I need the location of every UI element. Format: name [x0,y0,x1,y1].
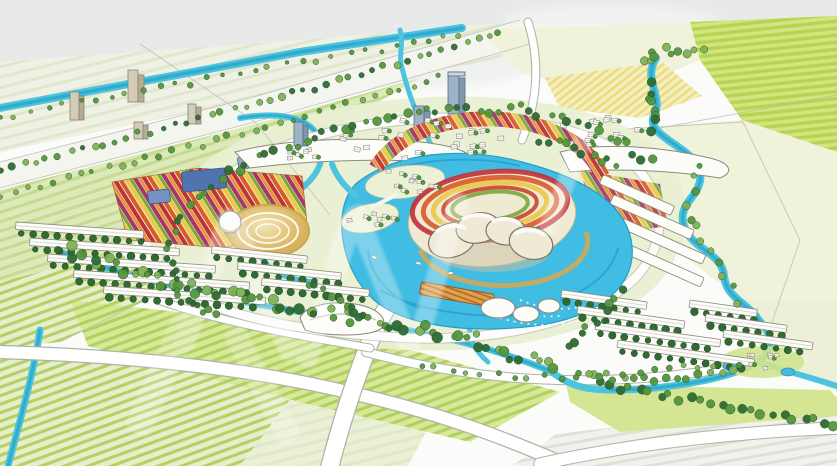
tree [360,97,366,103]
tree [441,34,445,38]
tree [301,58,307,64]
tree [432,332,443,343]
street-tree [116,252,122,258]
tree [113,259,120,266]
tree [432,110,438,116]
blue-roof-building [147,189,170,204]
tree [348,122,356,130]
tree [161,126,166,131]
tree [93,143,100,150]
tree [318,128,324,134]
tree [674,375,680,381]
tree [619,286,627,294]
tree [594,320,601,327]
tree [456,33,461,38]
tree [247,294,255,302]
tree [264,64,270,70]
tree [208,184,214,190]
tree [416,109,422,115]
tree [202,286,211,295]
tree [278,120,284,126]
tree [573,374,579,380]
masterplan-illustration [0,0,837,466]
tree [518,102,524,108]
tree [173,81,177,85]
tree [445,104,453,112]
street-tree [105,293,114,302]
yard-tree [482,150,487,155]
street-tree [151,254,159,262]
tree [604,307,612,315]
tree [736,362,742,368]
tree [563,139,571,147]
tree [386,325,393,332]
tree [747,406,754,413]
tree [426,52,431,57]
tree [196,194,202,200]
resort-pool [781,368,795,376]
street-tree [101,235,109,243]
tree [363,48,367,52]
tree [591,152,598,159]
tree [682,202,690,210]
tree [496,370,501,375]
tree [720,370,727,377]
yard-tree [292,151,297,156]
village-house [750,353,755,357]
village-house [347,218,353,222]
tree [241,162,247,168]
tree [609,377,616,384]
tree [348,304,355,311]
street-tree [32,246,38,252]
tree [187,201,195,209]
tree [623,138,631,146]
street-tree [127,252,136,261]
tree [487,34,492,39]
tree [711,364,716,369]
tree [313,59,319,65]
yard-tree [617,119,622,124]
tree [571,144,578,151]
tree [646,127,655,136]
tree [436,73,441,78]
tree [820,419,829,428]
tree [550,113,556,119]
tree [650,377,658,385]
tree [426,39,431,44]
tree [135,129,140,134]
tree [107,163,112,168]
tree [395,43,399,47]
tree [624,383,631,390]
tree [212,291,221,300]
tree [195,302,201,308]
tree [8,163,16,171]
tree [828,422,837,432]
tree [173,121,178,126]
yard-tree [384,136,389,141]
tree [664,390,671,397]
tree [300,88,305,93]
village-house [287,156,292,160]
yard-tree [640,129,644,133]
tree [80,98,84,102]
street-tree [75,277,83,285]
yard-tree [421,180,425,184]
tree [473,342,483,352]
tree [729,366,737,374]
tree [695,365,700,370]
street-tree [78,234,85,241]
street-tree [130,296,137,303]
tree [70,148,76,154]
tree [223,132,230,139]
tree [648,155,657,164]
village-house [498,136,504,141]
tree [305,138,312,145]
tree [89,169,93,173]
tree [262,125,268,131]
tree [694,370,702,378]
tree [238,72,242,76]
tree [718,273,725,280]
tree [453,331,463,341]
tree [330,125,338,133]
tree [692,188,700,196]
street-tree [182,271,188,277]
tree [285,307,294,316]
tree [601,318,607,324]
shore-pavilion [513,306,539,322]
tree [312,87,318,93]
tree [275,304,284,313]
tree [41,155,47,161]
tree [0,168,4,174]
tree [310,311,317,318]
tree [99,143,105,149]
tree [424,106,430,112]
tree [11,115,16,120]
tree [291,119,295,123]
tree [118,269,128,279]
tree [261,150,268,157]
tree [110,95,114,99]
tree [662,43,670,51]
tower [188,104,201,124]
tree [173,228,179,234]
tree [404,58,410,64]
tree [205,306,212,313]
tree [142,154,148,160]
street-tree [41,231,49,239]
tree [418,53,423,58]
tree [706,400,714,408]
tree [451,44,457,50]
tree [559,376,565,382]
tree [364,119,369,124]
tree [47,106,52,111]
tree [317,108,322,113]
tree [155,154,161,160]
tree [499,346,509,356]
tree [412,85,417,90]
street-tree [87,278,95,286]
tree [23,159,29,165]
tree [809,414,817,422]
tree [359,73,364,78]
tree [562,117,571,126]
tree [545,140,552,147]
tree [188,279,196,287]
village-house [603,117,610,122]
tree [285,61,289,65]
tree [190,289,200,299]
tree [662,374,670,382]
street-tree [118,295,125,302]
tree [582,324,588,330]
tree [174,292,180,298]
village-house [417,189,422,193]
tree [614,137,622,145]
tree [245,105,250,110]
village-house [303,149,308,153]
street-tree [126,238,132,244]
tree [514,356,523,365]
street-tree [86,265,92,271]
tree [506,356,513,363]
tree [579,330,586,337]
street-tree [65,233,72,240]
yard-tree [590,139,595,144]
tree [323,81,330,88]
tree [496,109,502,115]
tree [643,387,651,395]
tree [394,62,401,69]
tree [286,144,293,151]
tree [404,109,413,118]
tree [337,297,344,304]
tree [494,30,500,36]
tree [387,88,393,94]
tree [154,272,161,279]
tree [342,99,348,105]
tree [691,47,697,53]
tree [513,376,518,381]
tree [738,404,747,413]
tree [525,107,532,114]
tree [187,82,193,88]
tree [697,238,704,245]
tree [595,126,604,135]
street-tree [62,263,69,270]
tree [328,293,336,301]
tree [668,51,674,57]
village-house [429,184,434,188]
tree [91,256,100,265]
village-house [386,169,391,173]
tree [330,314,337,321]
tree [93,98,98,103]
tree [674,48,682,56]
tree [156,282,165,291]
tree [507,103,514,110]
tree [629,151,636,158]
tree [531,352,538,359]
tree [170,260,177,267]
tree [755,410,765,420]
tree [295,144,301,150]
tree [585,122,592,129]
tree [477,372,482,377]
tree [345,74,351,80]
tree [725,404,735,414]
tree [438,47,444,53]
tree [294,304,305,315]
tree [478,108,484,114]
tree [267,97,273,103]
tree [577,150,585,158]
tree [397,88,401,92]
tree [336,75,343,82]
tree [236,288,245,297]
tree [485,109,493,117]
tree [651,115,660,124]
street-tree [99,279,106,286]
tree [465,39,470,44]
street-tree [140,254,147,261]
tree [536,139,543,146]
street-tree [89,235,97,243]
tree [254,128,260,134]
tree [687,393,696,402]
tree [66,173,72,179]
street-tree [178,299,185,306]
tree [204,74,209,79]
village-house [398,132,405,137]
tree [707,369,714,376]
tree [123,136,129,142]
tree [454,104,460,110]
tree [451,369,456,374]
tree [122,91,127,96]
tree [787,415,796,424]
village-house [377,217,382,221]
shore-pavilion [538,299,560,313]
village-house [401,155,408,160]
tree [373,117,382,126]
tree [186,143,192,149]
street-tree [138,239,144,245]
tree [50,180,56,186]
tree [369,67,374,72]
tree [311,281,318,288]
tree [165,240,172,247]
tree [532,112,540,120]
village-house [763,366,768,370]
street-tree [165,298,173,306]
tree [216,108,223,115]
tree [13,190,18,195]
tree [411,39,416,44]
tree [224,166,233,175]
tree [289,88,295,94]
tree [708,248,714,254]
street-tree [194,272,200,278]
tree [233,105,238,110]
street-tree [153,297,161,305]
tree [54,153,61,160]
tree [716,259,723,266]
tree [420,364,425,369]
tree [278,93,286,101]
tree [523,376,529,382]
tree [731,283,737,289]
tree [380,50,384,54]
yard-tree [398,185,402,189]
tree [596,373,603,380]
tree [312,135,318,141]
tree [80,145,85,150]
tree [608,135,614,141]
tree [38,185,43,190]
tree [734,300,741,307]
tree [210,111,216,117]
tree [257,99,263,105]
tree [349,50,354,55]
street-tree [113,236,121,244]
tree [177,214,183,220]
street-tree [43,246,50,253]
tree [0,115,3,119]
tree [120,163,127,170]
tree [29,110,33,114]
tree [302,114,308,120]
tree [346,319,354,327]
tree [158,83,164,89]
yard-tree [421,151,425,155]
tree [420,320,430,330]
village-house [445,124,451,129]
tree [682,376,689,383]
street-tree [225,302,233,310]
tree [697,163,702,168]
tree [34,160,39,165]
tree [614,163,619,168]
tree [604,156,610,162]
tree [168,147,175,154]
tree [638,370,644,376]
tree [476,35,483,42]
tree [630,375,637,382]
tree [185,297,192,304]
tower [128,70,144,102]
tree [620,372,626,378]
tree [184,121,189,126]
tree [666,365,672,371]
shore-pavilion [481,298,515,318]
tree [269,146,278,155]
street-tree [142,297,149,304]
village-house [451,144,458,149]
village-house [479,142,486,147]
tree [464,334,470,340]
tree [647,78,656,87]
tree [67,240,78,251]
tree [647,97,655,105]
tree [463,371,468,376]
tree [424,80,429,85]
